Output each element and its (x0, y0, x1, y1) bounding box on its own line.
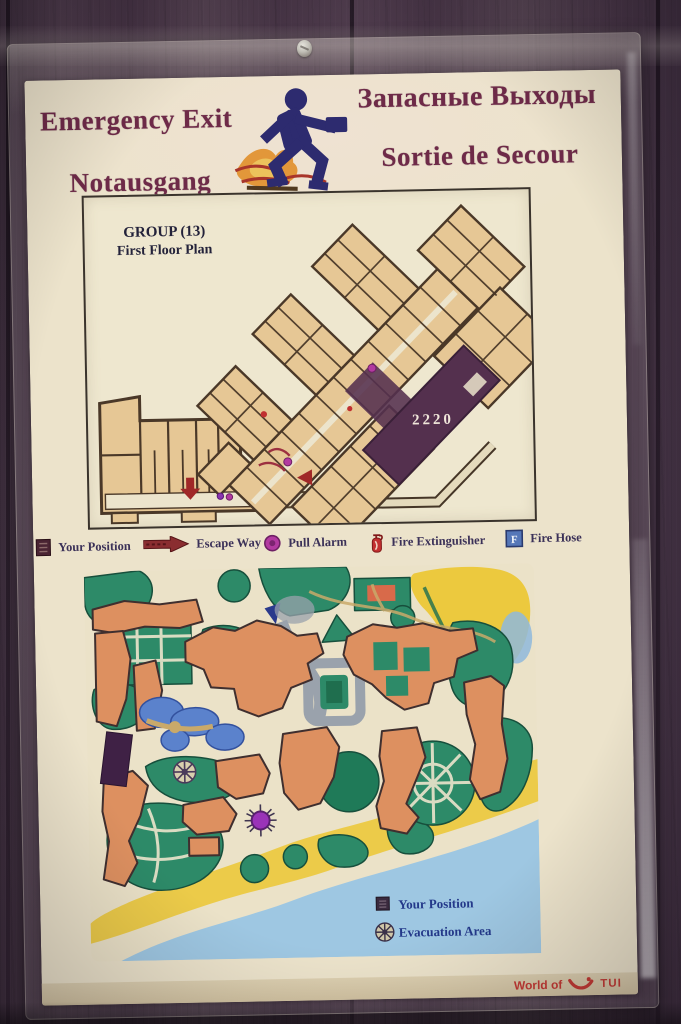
diagonal-building-cluster (153, 189, 535, 527)
tui-smile-icon (568, 976, 594, 992)
floor-plan-title: First Floor Plan (117, 242, 213, 259)
plastic-sleeve: Emergency Exit Notausgang Запасные Выход… (7, 32, 660, 1020)
your-position-square-icon (35, 538, 51, 556)
title-russian: Запасные Выходы (341, 79, 614, 116)
photo-of-emergency-exit-sign: Emergency Exit Notausgang Запасные Выход… (0, 0, 681, 1024)
evacuation-area-star-icon (376, 923, 394, 941)
fire-hose-letter: F (511, 534, 518, 546)
legend-label: Fire Extinguisher (391, 533, 485, 550)
title-english: Emergency Exit (29, 103, 244, 138)
legend-item-fire-hose: F Fire Hose (505, 528, 582, 547)
legend-label: Your Position (58, 538, 131, 554)
legend-item-your-position: Your Position (35, 537, 131, 557)
resort-evacuation-map: Your Position Evacuation Area (84, 563, 541, 962)
brand-name: TUI (600, 978, 622, 990)
floor-plan-legend: Your Position Escape Way Pull Alarm (35, 528, 597, 565)
brand-prefix: World of (514, 978, 563, 993)
legend-label: Pull Alarm (288, 534, 347, 550)
room-number-label: 2220 (412, 412, 454, 429)
sleeve-reflection-top (627, 53, 642, 345)
pull-alarm-dot-icon (263, 534, 281, 552)
legend-item-pull-alarm: Pull Alarm (263, 533, 347, 553)
escape-way-arrow-icon (143, 536, 189, 553)
legend-item-fire-extinguisher: Fire Extinguisher (369, 530, 485, 553)
your-position-building (100, 732, 132, 787)
running-man-fire-icon (221, 83, 355, 204)
floor-plan-drawing: GROUP (13) First Floor Plan (84, 189, 535, 527)
footer-strip: World of TUI (42, 972, 638, 1005)
map-legend-label: Your Position (398, 895, 474, 911)
bottom-shadow (0, 1002, 681, 1024)
map-legend-label: Evacuation Area (399, 923, 492, 940)
sports-court (367, 585, 395, 602)
sign-paper: Emergency Exit Notausgang Запасные Выход… (24, 69, 638, 1005)
title-french: Sortie de Secour (354, 138, 607, 174)
legend-item-escape-way: Escape Way (143, 534, 261, 552)
floor-plan-panel: GROUP (13) First Floor Plan (82, 187, 537, 530)
floor-plan-group-label: GROUP (13) (123, 223, 205, 241)
fire-hose-icon: F (505, 529, 523, 547)
legend-label: Fire Hose (530, 530, 582, 546)
fire-extinguisher-icon (369, 532, 384, 553)
evacuation-area-star-icon (173, 761, 195, 783)
legend-label: Escape Way (196, 535, 261, 551)
